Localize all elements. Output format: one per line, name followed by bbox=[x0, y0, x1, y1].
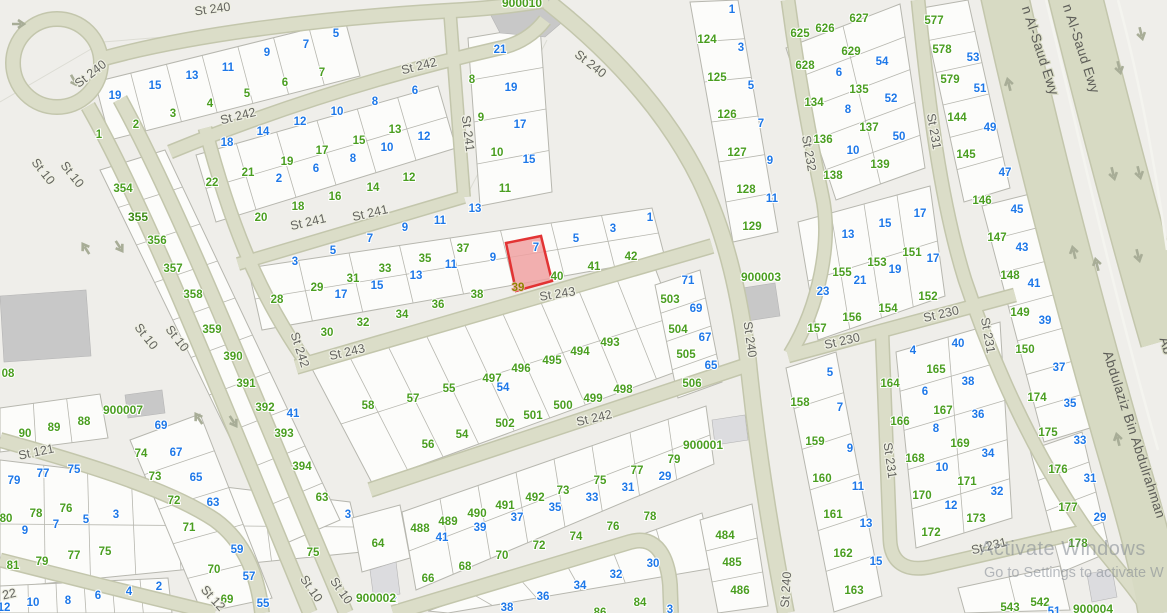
lot-number-green: 150 bbox=[1015, 344, 1034, 356]
plot-number-blue: 13 bbox=[469, 203, 482, 215]
plot-number-blue: 11 bbox=[434, 215, 447, 227]
district-code-label: 900001 bbox=[683, 438, 723, 452]
lot-number-green: 74 bbox=[135, 448, 148, 460]
plot-number-blue: 37 bbox=[511, 512, 524, 524]
plot-number-blue: 9 bbox=[490, 252, 496, 264]
plot-number-blue: 31 bbox=[1084, 473, 1097, 485]
lot-number-green: 11 bbox=[499, 183, 512, 195]
lot-number-green: 40 bbox=[551, 271, 564, 283]
lot-number-green: 73 bbox=[557, 485, 570, 497]
plot-number-blue: 21 bbox=[854, 275, 867, 287]
plot-number-blue: 13 bbox=[842, 229, 855, 241]
plot-number-blue: 38 bbox=[962, 376, 975, 388]
plot-number-blue: 10 bbox=[847, 145, 860, 157]
plot-number-blue: 11 bbox=[445, 259, 458, 271]
lot-number-green: 55 bbox=[443, 383, 456, 395]
plot-number-blue: 43 bbox=[1016, 242, 1029, 254]
plot-number-blue: 57 bbox=[243, 571, 256, 583]
plot-number-blue: 19 bbox=[109, 90, 122, 102]
plot-number-blue: 2 bbox=[276, 173, 282, 185]
lot-number-green: 80 bbox=[0, 513, 12, 525]
lot-number-green: 503 bbox=[660, 294, 679, 306]
plot-number-blue: 6 bbox=[836, 67, 842, 79]
plot-number-blue: 8 bbox=[372, 96, 379, 108]
lot-number-green: 174 bbox=[1027, 392, 1047, 404]
lot-number-green: 484 bbox=[715, 530, 735, 542]
district-code-label: 900004 bbox=[1073, 602, 1113, 613]
lot-number-green: 135 bbox=[849, 84, 869, 96]
lot-number-green: 68 bbox=[459, 561, 472, 573]
lot-number-green: 76 bbox=[607, 521, 620, 533]
lot-number-green: 2 bbox=[133, 119, 139, 131]
lot-number-green: 177 bbox=[1058, 502, 1077, 514]
lot-number-green: 390 bbox=[223, 351, 242, 363]
lot-number-green: 392 bbox=[255, 402, 274, 414]
lot-number-green: 128 bbox=[736, 184, 756, 196]
lot-number-green: 391 bbox=[236, 378, 256, 390]
lot-number-green: 543 bbox=[1000, 602, 1019, 613]
plot-number-blue: 15 bbox=[149, 80, 162, 92]
plot-number-blue: 5 bbox=[83, 514, 90, 526]
lot-number-green: 579 bbox=[940, 74, 959, 86]
plot-number-blue: 3 bbox=[667, 604, 673, 613]
lot-number-green: 165 bbox=[926, 364, 946, 376]
lot-number-green: 125 bbox=[707, 72, 727, 84]
lot-number-green: 71 bbox=[183, 522, 196, 534]
lot-number-green: 138 bbox=[823, 170, 843, 182]
lot-number-green: 170 bbox=[912, 490, 931, 502]
plot-number-blue: 12 bbox=[945, 500, 958, 512]
lot-number-green: 625 bbox=[790, 28, 810, 40]
lot-number-green: 578 bbox=[932, 44, 952, 56]
lot-number-green: 77 bbox=[68, 550, 81, 562]
plot-number-blue: 13 bbox=[186, 70, 199, 82]
lot-number-green: 159 bbox=[805, 436, 824, 448]
plot-number-blue: 45 bbox=[1011, 204, 1024, 216]
lot-number-green: 31 bbox=[347, 273, 360, 285]
plot-number-blue: 6 bbox=[313, 163, 319, 175]
plot-number-blue: 3 bbox=[610, 223, 616, 235]
lot-number-green: 628 bbox=[795, 60, 815, 72]
lot-number-green: 66 bbox=[422, 573, 435, 585]
lot-number-green: 485 bbox=[722, 557, 742, 569]
lot-number-green: 33 bbox=[379, 263, 392, 275]
lot-number-green: 172 bbox=[921, 527, 940, 539]
lot-number-green: 502 bbox=[495, 418, 514, 430]
plot-number-blue: 32 bbox=[610, 569, 623, 581]
lot-number-green: 84 bbox=[634, 597, 647, 609]
plot-number-blue: 7 bbox=[533, 242, 539, 254]
plot-number-blue: 33 bbox=[586, 492, 599, 504]
lot-number-green: 78 bbox=[30, 508, 43, 520]
lot-number-green: 499 bbox=[583, 393, 602, 405]
lot-number-green: 163 bbox=[844, 585, 863, 597]
lot-number-green: 491 bbox=[495, 500, 515, 512]
plot-number-blue: 35 bbox=[1064, 398, 1077, 410]
lot-number-green: 498 bbox=[613, 384, 633, 396]
lot-number-green: 137 bbox=[859, 122, 878, 134]
street-name-label: St 240 bbox=[778, 571, 794, 608]
plot-number-blue: 67 bbox=[699, 332, 712, 344]
plot-number-blue: 69 bbox=[690, 303, 703, 315]
plot-number-blue: 11 bbox=[222, 62, 235, 74]
plot-number-blue: 17 bbox=[514, 119, 527, 131]
lot-number-green: 504 bbox=[668, 324, 688, 336]
lot-number-green: 58 bbox=[362, 400, 375, 412]
lot-number-green: 146 bbox=[972, 195, 991, 207]
lot-number-green: 134 bbox=[804, 97, 824, 109]
plot-number-blue: 51 bbox=[974, 83, 987, 95]
plot-number-blue: 34 bbox=[574, 580, 587, 592]
plot-number-blue: 77 bbox=[37, 468, 50, 480]
lot-number-green: 77 bbox=[631, 465, 644, 477]
plot-number-blue: 5 bbox=[748, 80, 755, 92]
plot-number-blue: 15 bbox=[371, 280, 384, 292]
lot-number-green: 76 bbox=[60, 503, 73, 515]
lot-number-green: 149 bbox=[1010, 307, 1029, 319]
plot-number-blue: 13 bbox=[410, 270, 423, 282]
lot-number-green: 34 bbox=[396, 309, 409, 321]
plot-number-blue: 9 bbox=[264, 47, 270, 59]
lot-number-green: 35 bbox=[419, 253, 432, 265]
plot-number-blue: 4 bbox=[910, 345, 917, 357]
lot-number-green: 20 bbox=[255, 212, 268, 224]
highlighted-parcel-number: 39 bbox=[512, 282, 525, 294]
lot-number-green: 124 bbox=[697, 34, 717, 46]
lot-number-green: 152 bbox=[918, 291, 937, 303]
lot-number-green: 08 bbox=[2, 368, 15, 380]
plot-number-blue: 7 bbox=[837, 402, 843, 414]
lot-number-green: 139 bbox=[870, 159, 889, 171]
map-canvas[interactable]: 1234567222119171513201816141289101128293… bbox=[0, 0, 1167, 613]
lot-number-green: 626 bbox=[815, 23, 834, 35]
plot-number-blue: 39 bbox=[1039, 315, 1052, 327]
plot-number-blue: 29 bbox=[659, 471, 672, 483]
plot-number-blue: 8 bbox=[845, 104, 852, 116]
plot-number-blue: 75 bbox=[68, 464, 81, 476]
lot-number-green: 157 bbox=[807, 323, 826, 335]
plot-number-blue: 1 bbox=[647, 212, 654, 224]
lot-number-green: 394 bbox=[292, 461, 312, 473]
lot-number-green: 70 bbox=[496, 550, 509, 562]
plot-number-blue: 14 bbox=[257, 126, 270, 138]
plot-number-blue: 51 bbox=[1048, 606, 1061, 613]
lot-number-green: 168 bbox=[905, 453, 925, 465]
plot-number-blue: 7 bbox=[303, 39, 309, 51]
lot-number-green: 56 bbox=[422, 439, 435, 451]
plot-number-blue: 63 bbox=[207, 497, 220, 509]
plot-number-blue: 54 bbox=[876, 56, 889, 68]
plot-number-blue: 59 bbox=[231, 544, 244, 556]
lot-number-green: 357 bbox=[163, 263, 182, 275]
lot-number-green: 21 bbox=[242, 167, 255, 179]
plot-number-blue: 3 bbox=[738, 42, 744, 54]
plot-number-blue: 9 bbox=[22, 525, 28, 537]
lot-number-green: 359 bbox=[202, 324, 221, 336]
plot-number-blue: 67 bbox=[170, 447, 183, 459]
lot-number-green: 393 bbox=[274, 428, 293, 440]
lot-number-green: 74 bbox=[570, 531, 583, 543]
plot-number-blue: 6 bbox=[922, 386, 928, 398]
lot-number-green: 41 bbox=[588, 261, 601, 273]
lot-number-green: 57 bbox=[407, 393, 420, 405]
plot-number-blue: 2 bbox=[156, 581, 162, 593]
plot-number-blue: 3 bbox=[292, 256, 298, 268]
lot-number-green: 28 bbox=[271, 294, 284, 306]
lot-number-green: 355 bbox=[128, 210, 148, 224]
lot-number-green: 486 bbox=[730, 585, 749, 597]
plot-number-blue: 12 bbox=[294, 116, 307, 128]
lot-number-green: 505 bbox=[676, 349, 696, 361]
lot-number-green: 155 bbox=[832, 267, 852, 279]
lot-number-green: 38 bbox=[471, 289, 484, 301]
lot-number-green: 158 bbox=[790, 397, 810, 409]
lot-number-green: 30 bbox=[321, 327, 334, 339]
lot-number-green: 162 bbox=[833, 548, 852, 560]
plot-number-blue: 5 bbox=[827, 367, 834, 379]
plot-number-blue: 40 bbox=[952, 338, 965, 350]
lot-number-green: 175 bbox=[1038, 427, 1058, 439]
plot-number-blue: 7 bbox=[758, 118, 764, 130]
lot-number-green: 81 bbox=[7, 560, 20, 572]
plot-number-blue: 4 bbox=[126, 586, 133, 598]
plot-number-blue: 23 bbox=[817, 286, 830, 298]
plot-number-blue: 65 bbox=[705, 360, 718, 372]
plot-number-blue: 19 bbox=[889, 264, 902, 276]
lot-number-green: 79 bbox=[36, 556, 49, 568]
building-footprint bbox=[0, 290, 91, 362]
plot-number-blue: 3 bbox=[345, 509, 351, 521]
plot-number-blue: 7 bbox=[367, 233, 373, 245]
lot-number-green: 70 bbox=[208, 564, 221, 576]
lot-number-green: 488 bbox=[410, 523, 430, 535]
plot-number-blue: 5 bbox=[573, 233, 580, 245]
plot-number-blue: 10 bbox=[27, 597, 40, 609]
lot-number-green: 16 bbox=[329, 191, 342, 203]
lot-number-green: 354 bbox=[113, 183, 133, 195]
plot-number-blue: 10 bbox=[331, 106, 344, 118]
lot-number-green: 14 bbox=[367, 182, 380, 194]
plot-number-blue: 12 bbox=[0, 602, 10, 613]
plot-number-blue: 6 bbox=[412, 85, 418, 97]
plot-number-blue: 12 bbox=[418, 131, 431, 143]
lot-number-green: 90 bbox=[19, 428, 32, 440]
plot-number-blue: 9 bbox=[767, 155, 773, 167]
plot-number-blue: 17 bbox=[914, 208, 927, 220]
plot-number-blue: 5 bbox=[330, 245, 337, 257]
plot-number-blue: 49 bbox=[984, 122, 997, 134]
lot-number-green: 8 bbox=[469, 74, 476, 86]
plot-number-blue: 18 bbox=[221, 137, 234, 149]
plot-number-blue: 36 bbox=[537, 591, 550, 603]
lot-number-green: 54 bbox=[456, 429, 469, 441]
lot-number-green: 358 bbox=[183, 289, 203, 301]
lot-number-green: 86 bbox=[594, 607, 607, 613]
plot-number-blue: 6 bbox=[95, 590, 101, 602]
lot-number-green: 89 bbox=[48, 422, 61, 434]
lot-number-green: 356 bbox=[147, 235, 166, 247]
lot-number-green: 129 bbox=[742, 221, 761, 233]
lot-number-green: 36 bbox=[432, 299, 445, 311]
lot-number-green: 147 bbox=[987, 232, 1006, 244]
lot-number-green: 19 bbox=[281, 156, 294, 168]
lot-number-green: 75 bbox=[307, 547, 320, 559]
plot-number-blue: 34 bbox=[982, 448, 995, 460]
lot-number-green: 489 bbox=[438, 516, 457, 528]
lot-number-green: 9 bbox=[478, 112, 484, 124]
plot-number-blue: 52 bbox=[885, 93, 898, 105]
plot-number-blue: 79 bbox=[8, 475, 21, 487]
lot-number-green: 144 bbox=[947, 112, 967, 124]
plot-number-blue: 10 bbox=[936, 462, 949, 474]
plot-number-blue: 1 bbox=[729, 4, 736, 16]
plot-number-blue: 32 bbox=[991, 486, 1004, 498]
plot-number-blue: 41 bbox=[436, 532, 449, 544]
plot-number-blue: 35 bbox=[549, 502, 562, 514]
plot-number-blue: 55 bbox=[257, 598, 270, 610]
plot-number-blue: 41 bbox=[1028, 278, 1041, 290]
lot-number-green: 7 bbox=[319, 67, 325, 79]
lot-number-green: 577 bbox=[924, 15, 943, 27]
lot-number-green: 75 bbox=[594, 475, 607, 487]
lot-number-green: 495 bbox=[542, 355, 562, 367]
lot-number-green: 153 bbox=[867, 257, 886, 269]
plot-number-blue: 10 bbox=[381, 142, 394, 154]
plot-number-blue: 7 bbox=[53, 519, 59, 531]
plot-number-blue: 11 bbox=[766, 193, 779, 205]
plot-number-blue: 38 bbox=[501, 602, 514, 613]
lot-number-green: 5 bbox=[244, 88, 251, 100]
plot-number-blue: 31 bbox=[622, 482, 635, 494]
plot-number-blue: 8 bbox=[65, 595, 72, 607]
plot-number-blue: 3 bbox=[113, 509, 119, 521]
lot-number-green: 42 bbox=[625, 251, 638, 263]
lot-number-green: 169 bbox=[950, 438, 969, 450]
lot-number-green: 78 bbox=[644, 511, 657, 523]
lot-number-green: 1 bbox=[96, 129, 103, 141]
plot-number-blue: 15 bbox=[879, 218, 892, 230]
lot-number-green: 75 bbox=[99, 546, 112, 558]
lot-number-green: 501 bbox=[523, 410, 543, 422]
plot-number-blue: 15 bbox=[870, 556, 883, 568]
plot-number-blue: 65 bbox=[190, 472, 203, 484]
plot-number-blue: 5 bbox=[333, 28, 340, 40]
lot-number-green: 29 bbox=[311, 282, 324, 294]
lot-number-green: 173 bbox=[966, 513, 985, 525]
lot-number-green: 629 bbox=[841, 46, 860, 58]
lot-number-green: 494 bbox=[570, 346, 590, 358]
plot-number-blue: 29 bbox=[1094, 512, 1107, 524]
lot-number-green: 490 bbox=[467, 508, 486, 520]
lot-number-green: 167 bbox=[933, 405, 952, 417]
plot-number-blue: 17 bbox=[927, 253, 940, 265]
lot-number-green: 160 bbox=[812, 473, 831, 485]
lot-number-green: 4 bbox=[207, 98, 214, 110]
lot-number-green: 154 bbox=[878, 303, 898, 315]
plot-number-blue: 41 bbox=[287, 408, 300, 420]
lot-number-green: 13 bbox=[389, 124, 402, 136]
plot-number-blue: 39 bbox=[474, 522, 487, 534]
lot-number-green: 73 bbox=[149, 471, 162, 483]
lot-number-green: 145 bbox=[956, 149, 976, 161]
lot-number-green: 148 bbox=[1000, 270, 1020, 282]
lot-number-green: 17 bbox=[316, 145, 329, 157]
lot-number-green: 164 bbox=[880, 378, 900, 390]
street-name-label: 22 bbox=[1, 586, 18, 603]
plot-number-blue: 54 bbox=[497, 382, 510, 394]
lot-number-green: 171 bbox=[957, 476, 977, 488]
plot-number-blue: 13 bbox=[860, 518, 873, 530]
lot-number-green: 18 bbox=[292, 201, 305, 213]
plot-number-blue: 33 bbox=[1074, 435, 1087, 447]
district-code-label: 900003 bbox=[741, 270, 781, 284]
plot-number-blue: 69 bbox=[155, 420, 168, 432]
map-viewport[interactable]: 1234567222119171513201816141289101128293… bbox=[0, 0, 1167, 613]
lot-number-green: 88 bbox=[78, 416, 91, 428]
lot-number-green: 151 bbox=[902, 247, 922, 259]
lot-number-green: 493 bbox=[600, 337, 619, 349]
lot-number-green: 10 bbox=[491, 147, 504, 159]
lot-number-green: 161 bbox=[823, 509, 843, 521]
plot-number-blue: 30 bbox=[647, 558, 660, 570]
windows-watermark-line2: Go to Settings to activate W bbox=[984, 565, 1164, 581]
lot-number-green: 32 bbox=[357, 317, 370, 329]
district-code-label: 900002 bbox=[356, 591, 396, 605]
lot-number-green: 496 bbox=[511, 363, 530, 375]
plot-number-blue: 9 bbox=[847, 443, 853, 455]
plot-number-blue: 36 bbox=[972, 409, 985, 421]
lot-number-green: 127 bbox=[727, 147, 746, 159]
lot-number-green: 500 bbox=[553, 400, 572, 412]
lot-number-green: 79 bbox=[668, 454, 681, 466]
plot-number-blue: 15 bbox=[523, 154, 536, 166]
plot-number-blue: 19 bbox=[505, 82, 518, 94]
plot-number-blue: 37 bbox=[1053, 362, 1066, 374]
plot-number-blue: 17 bbox=[335, 289, 348, 301]
lot-number-green: 22 bbox=[206, 177, 219, 189]
plot-number-blue: 47 bbox=[999, 167, 1012, 179]
plot-number-blue: 53 bbox=[967, 52, 980, 64]
lot-number-green: 37 bbox=[457, 243, 470, 255]
lot-number-green: 72 bbox=[168, 495, 181, 507]
lot-number-green: 64 bbox=[372, 538, 385, 550]
lot-number-green: 506 bbox=[682, 378, 701, 390]
lot-number-green: 126 bbox=[717, 109, 736, 121]
plot-number-blue: 21 bbox=[494, 44, 507, 56]
district-code-label: 900007 bbox=[103, 403, 143, 417]
lot-number-green: 176 bbox=[1048, 464, 1067, 476]
plot-number-blue: 11 bbox=[852, 481, 865, 493]
lot-number-green: 12 bbox=[403, 172, 416, 184]
lot-number-green: 3 bbox=[170, 108, 176, 120]
lot-number-green: 136 bbox=[813, 134, 832, 146]
lot-number-green: 63 bbox=[316, 492, 329, 504]
lot-number-green: 492 bbox=[525, 492, 544, 504]
lot-number-green: 156 bbox=[842, 312, 861, 324]
plot-number-blue: 50 bbox=[893, 131, 906, 143]
lot-number-green: 6 bbox=[282, 77, 288, 89]
plot-number-blue: 71 bbox=[682, 275, 695, 287]
plot-number-blue: 9 bbox=[402, 222, 408, 234]
windows-watermark-line1: Activate Windows bbox=[980, 538, 1146, 561]
lot-number-green: 166 bbox=[890, 416, 909, 428]
plot-number-blue: 8 bbox=[933, 423, 940, 435]
district-code-label: 900010 bbox=[502, 0, 542, 10]
lot-number-green: 15 bbox=[353, 135, 366, 147]
lot-number-green: 72 bbox=[533, 540, 546, 552]
plot-number-blue: 8 bbox=[350, 153, 357, 165]
lot-number-green: 627 bbox=[849, 13, 868, 25]
